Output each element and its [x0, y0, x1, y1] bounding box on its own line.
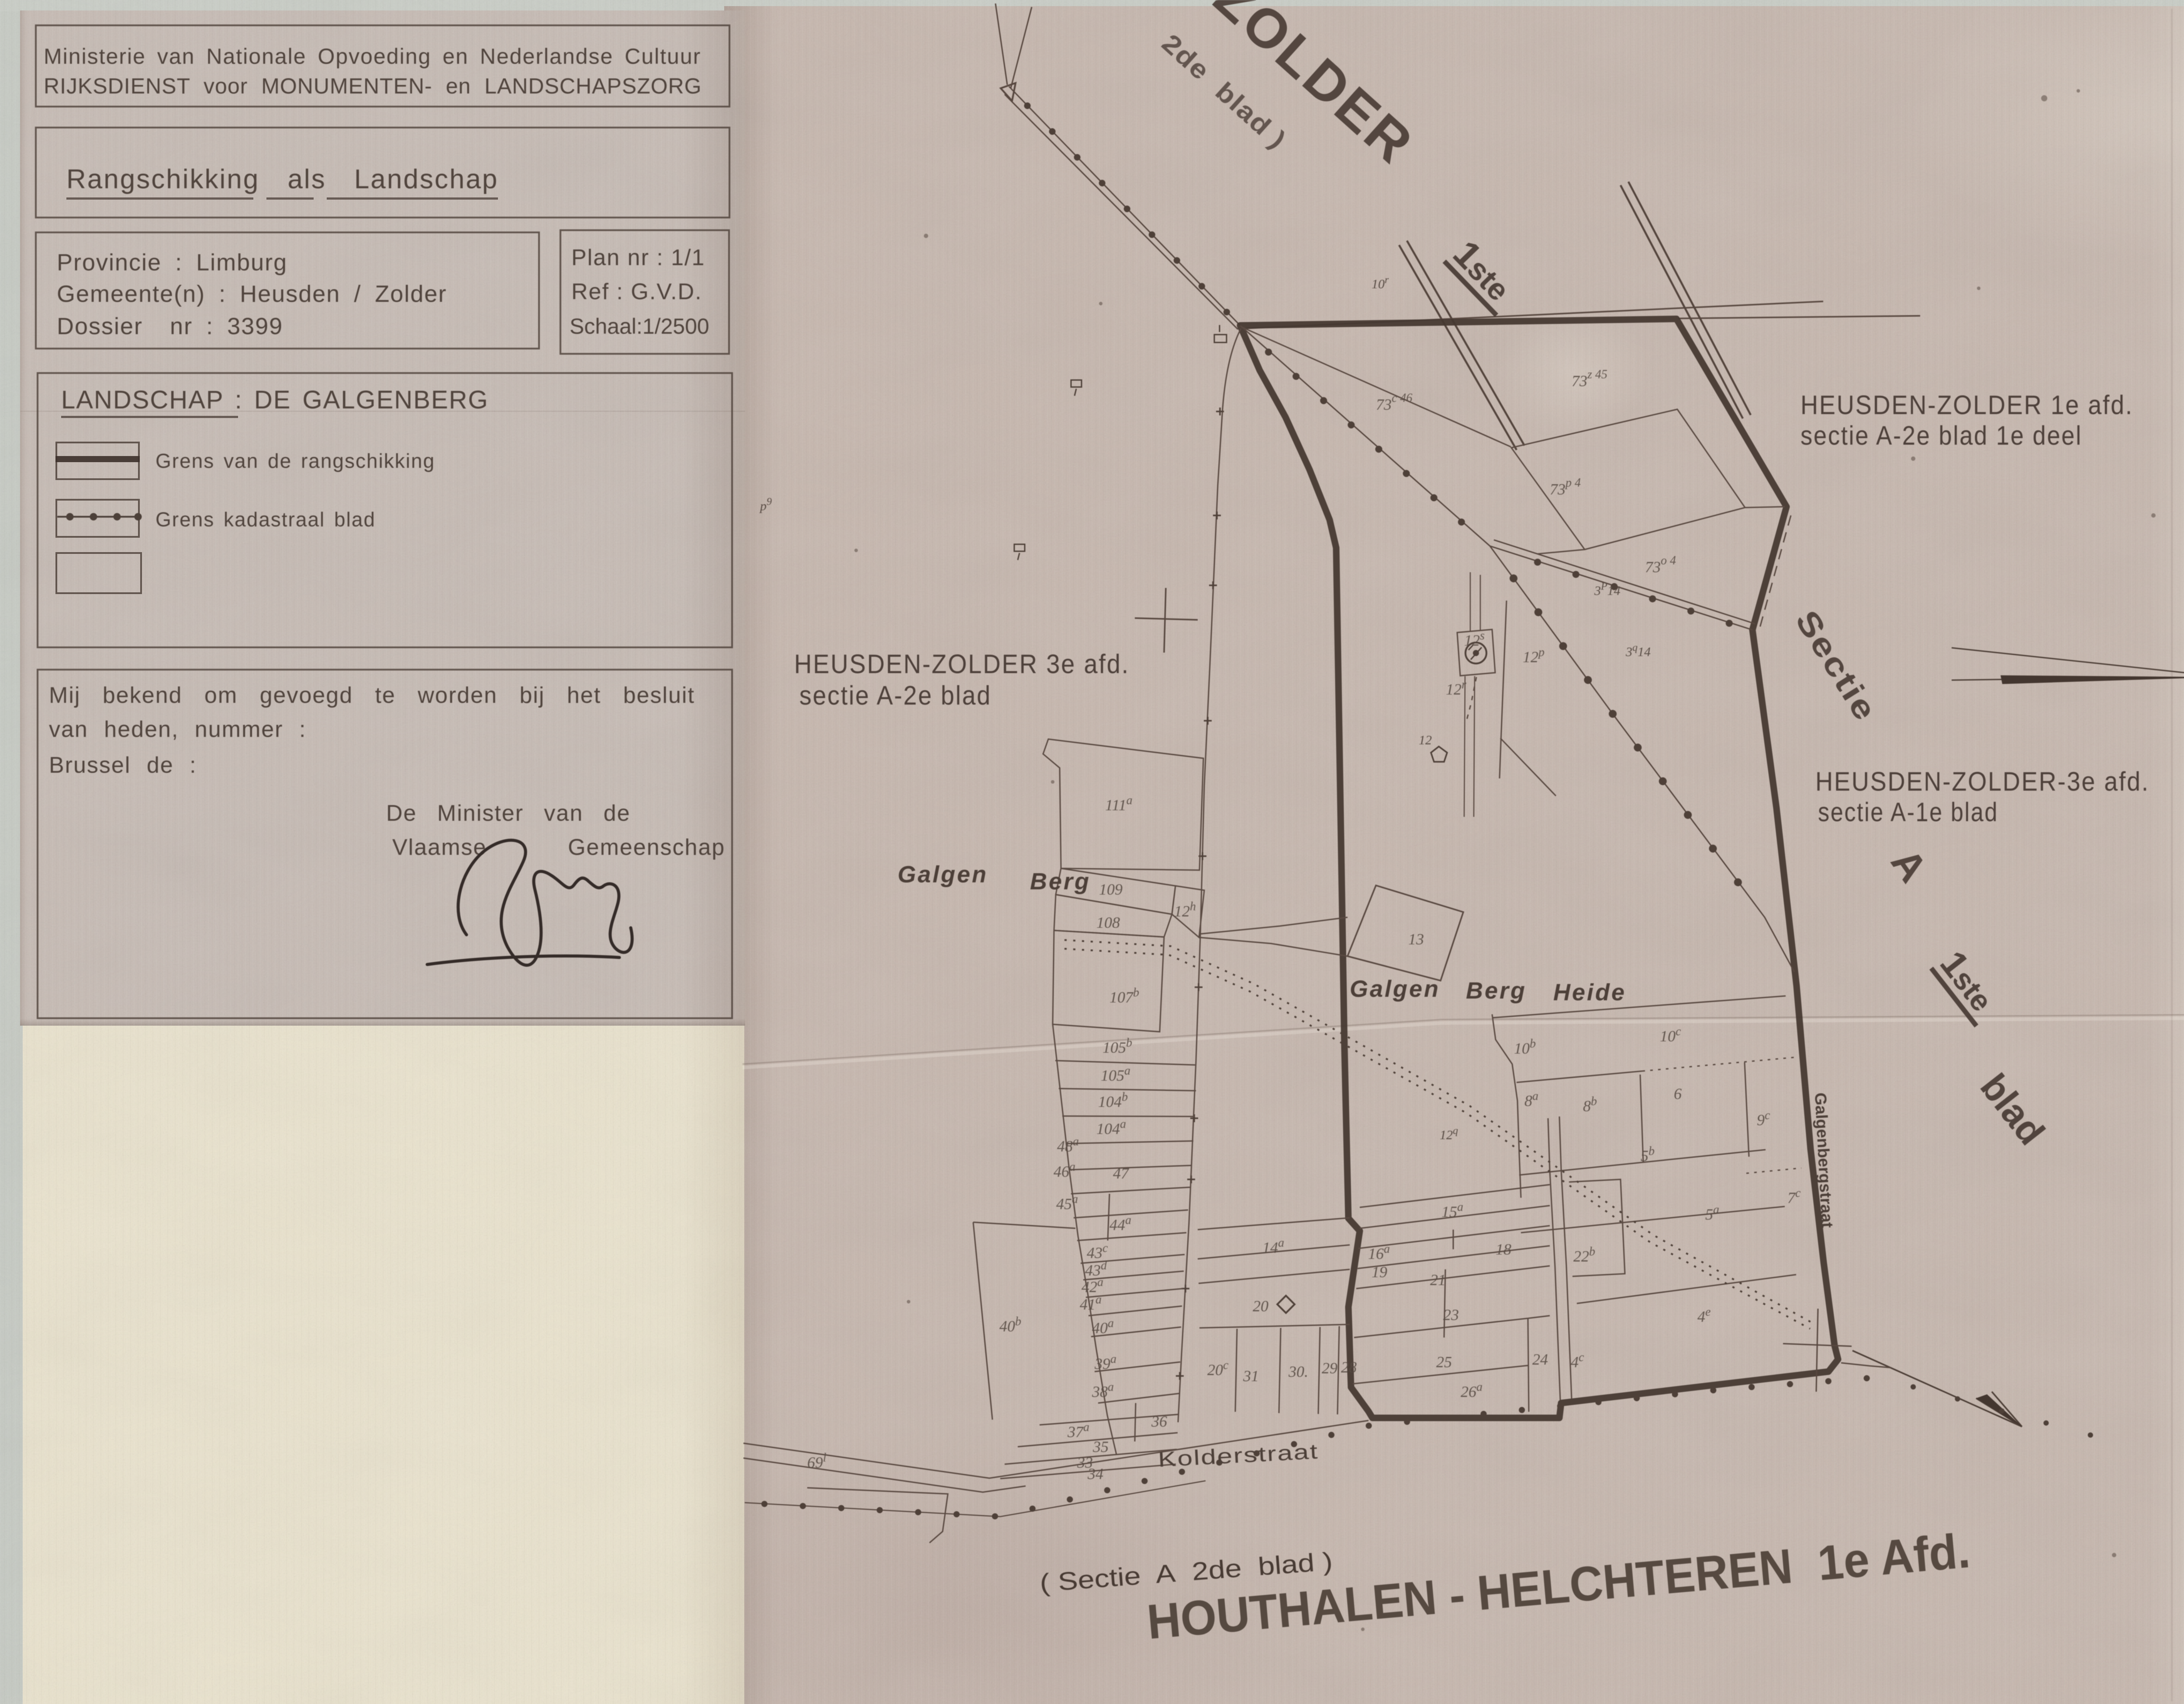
svg-text:HOUTHALEN - HELCHTEREN 1e Afd: HOUTHALEN - HELCHTEREN 1e Afd.	[1145, 1523, 1972, 1649]
svg-text:12s: 12s	[1464, 629, 1485, 649]
svg-text:29: 29	[1322, 1359, 1337, 1377]
svg-text:12h: 12h	[1174, 900, 1196, 920]
svg-text:16a: 16a	[1368, 1242, 1390, 1262]
svg-text:48a: 48a	[1057, 1135, 1079, 1155]
svg-text:109: 109	[1099, 881, 1123, 898]
svg-text:24: 24	[1532, 1351, 1548, 1368]
svg-text:107b: 107b	[1109, 986, 1139, 1006]
svg-text:22b: 22b	[1573, 1245, 1595, 1265]
svg-text:12: 12	[1419, 733, 1432, 747]
svg-text:21: 21	[1430, 1271, 1446, 1289]
svg-text:46a: 46a	[1054, 1160, 1075, 1180]
svg-text:sectie A-2e blad 1e deel: sectie A-2e blad 1e deel	[1800, 421, 2082, 450]
svg-text:5a: 5a	[1705, 1203, 1719, 1223]
svg-text:blad: blad	[1972, 1066, 2053, 1153]
svg-text:104b: 104b	[1098, 1090, 1128, 1110]
svg-text:12r: 12r	[1446, 678, 1466, 698]
svg-text:10c: 10c	[1660, 1025, 1681, 1045]
svg-text:Kolderstraat: Kolderstraat	[1158, 1440, 1319, 1472]
svg-text:4c: 4c	[1571, 1351, 1584, 1371]
svg-text:69l: 69l	[807, 1451, 826, 1471]
svg-text:35: 35	[1092, 1438, 1109, 1455]
svg-text:p9: p9	[759, 496, 772, 513]
svg-text:Galgen: Galgen	[1350, 976, 1440, 1002]
svg-text:12p: 12p	[1523, 646, 1545, 666]
svg-text:Berg: Berg	[1466, 978, 1527, 1004]
svg-text:8a: 8a	[1524, 1089, 1538, 1110]
svg-text:36: 36	[1151, 1413, 1167, 1430]
svg-text:105b: 105b	[1102, 1036, 1132, 1056]
svg-text:73c 46: 73c 46	[1376, 391, 1412, 413]
svg-text:18: 18	[1496, 1241, 1511, 1258]
svg-text:44a: 44a	[1109, 1213, 1131, 1234]
svg-text:25: 25	[1436, 1353, 1452, 1371]
svg-text:Galgen: Galgen	[898, 861, 988, 888]
svg-text:73p 4: 73p 4	[1550, 476, 1581, 498]
svg-text:10b: 10b	[1514, 1037, 1536, 1057]
svg-text:HEUSDEN-ZOLDER-3e afd.: HEUSDEN-ZOLDER-3e afd.	[1815, 767, 2149, 796]
svg-text:20: 20	[1253, 1297, 1268, 1315]
svg-text:Sectie: Sectie	[1788, 604, 1884, 727]
svg-text:30.: 30.	[1288, 1363, 1308, 1380]
svg-text:sectie A-2e blad: sectie A-2e blad	[799, 681, 992, 710]
svg-text:14a: 14a	[1262, 1236, 1284, 1256]
svg-text:26a: 26a	[1461, 1380, 1482, 1400]
svg-text:sectie A-1e blad: sectie A-1e blad	[1818, 797, 1998, 827]
svg-text:Heide: Heide	[1553, 979, 1626, 1006]
svg-text:HEUSDEN-ZOLDER 1e afd.: HEUSDEN-ZOLDER 1e afd.	[1800, 390, 2133, 420]
svg-text:15a: 15a	[1441, 1200, 1463, 1220]
svg-text:4e: 4e	[1697, 1305, 1711, 1325]
svg-text:20c: 20c	[1207, 1358, 1229, 1379]
svg-text:12q: 12q	[1440, 1125, 1458, 1142]
svg-text:13: 13	[1408, 930, 1424, 948]
svg-text:40a: 40a	[1092, 1317, 1114, 1337]
svg-text:38a: 38a	[1092, 1380, 1114, 1400]
svg-text:73z 45: 73z 45	[1572, 368, 1607, 390]
svg-text:3P14: 3P14	[1594, 581, 1621, 598]
svg-text:28: 28	[1341, 1358, 1357, 1376]
svg-text:3q14: 3q14	[1625, 642, 1651, 659]
svg-text:Berg: Berg	[1030, 868, 1091, 895]
svg-text:73o 4: 73o 4	[1645, 554, 1676, 576]
svg-text:41a: 41a	[1080, 1293, 1102, 1313]
svg-text:47: 47	[1113, 1165, 1130, 1182]
svg-text:34: 34	[1087, 1465, 1103, 1483]
svg-text:23: 23	[1443, 1306, 1459, 1324]
svg-text:43d: 43d	[1085, 1259, 1107, 1279]
svg-text:A: A	[1883, 841, 1936, 890]
svg-text:9c: 9c	[1757, 1109, 1770, 1129]
svg-text:8b: 8b	[1583, 1095, 1597, 1115]
svg-text:HEUSDEN-ZOLDER 3e afd.: HEUSDEN-ZOLDER 3e afd.	[794, 649, 1130, 679]
svg-text:7c: 7c	[1787, 1186, 1801, 1206]
svg-text:6: 6	[1674, 1085, 1682, 1103]
svg-text:19: 19	[1372, 1263, 1387, 1281]
svg-text:111a: 111a	[1105, 794, 1133, 814]
svg-text:10r: 10r	[1372, 274, 1389, 291]
svg-text:40b: 40b	[999, 1315, 1021, 1335]
svg-text:108: 108	[1096, 914, 1120, 931]
svg-text:105a: 105a	[1101, 1064, 1130, 1084]
svg-text:104a: 104a	[1096, 1117, 1126, 1137]
svg-text:31: 31	[1243, 1367, 1259, 1385]
svg-text:37a: 37a	[1067, 1421, 1089, 1441]
